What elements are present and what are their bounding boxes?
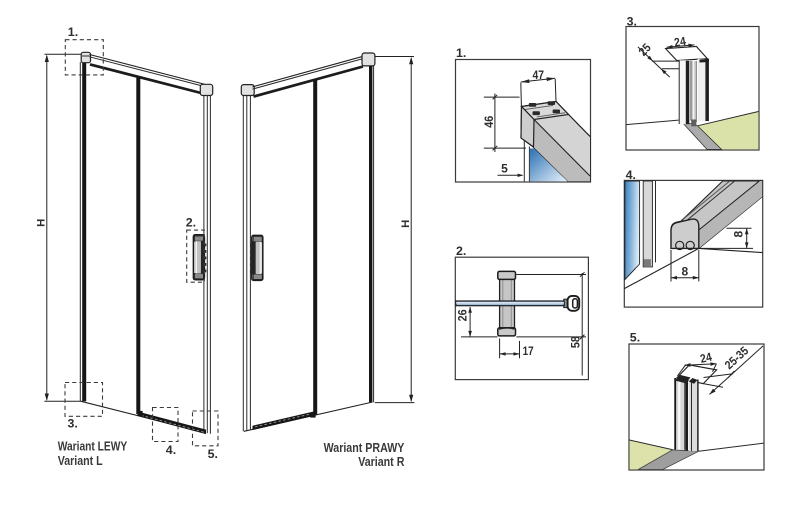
svg-text:58: 58 (568, 336, 582, 348)
svg-text:46: 46 (482, 115, 496, 127)
svg-text:17: 17 (523, 344, 534, 358)
svg-text:Variant L: Variant L (58, 454, 103, 468)
svg-text:2.: 2. (186, 216, 196, 230)
svg-text:8: 8 (732, 231, 746, 238)
svg-text:5.: 5. (208, 447, 218, 461)
svg-text:8: 8 (682, 264, 689, 278)
svg-text:4.: 4. (166, 443, 176, 457)
svg-text:1.: 1. (456, 46, 466, 60)
svg-text:1.: 1. (68, 25, 78, 39)
svg-text:Wariant LEWY: Wariant LEWY (58, 440, 128, 454)
svg-text:Wariant PRAWY: Wariant PRAWY (324, 441, 405, 455)
svg-text:Variant R: Variant R (358, 455, 404, 469)
svg-text:26: 26 (456, 309, 470, 321)
svg-text:2.: 2. (456, 244, 466, 258)
svg-text:5: 5 (501, 162, 508, 176)
svg-text:3.: 3. (68, 417, 78, 431)
svg-text:5.: 5. (630, 331, 640, 345)
svg-text:H: H (400, 220, 412, 228)
svg-text:47: 47 (533, 68, 545, 82)
svg-text:H: H (36, 219, 48, 227)
